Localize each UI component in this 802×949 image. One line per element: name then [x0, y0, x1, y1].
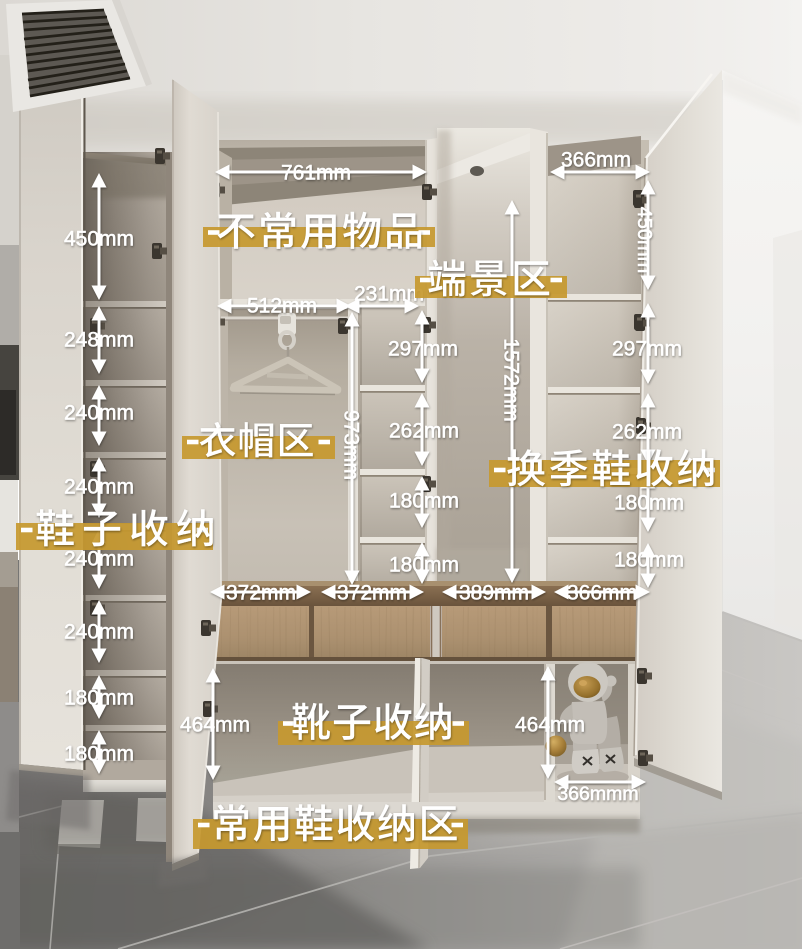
svg-text:240mm: 240mm: [64, 620, 134, 643]
svg-text:372mm: 372mm: [337, 581, 407, 604]
svg-text:366mmm: 366mmm: [557, 783, 638, 805]
svg-text:389mm: 389mm: [459, 581, 529, 604]
svg-text:262mm: 262mm: [612, 420, 682, 443]
svg-text:512mm: 512mm: [247, 294, 317, 317]
svg-text:1572mm: 1572mm: [499, 338, 523, 422]
svg-text:240mm: 240mm: [64, 547, 134, 570]
svg-text:464mm: 464mm: [180, 713, 250, 736]
svg-text:761mm: 761mm: [281, 161, 351, 184]
svg-text:240mm: 240mm: [64, 475, 134, 498]
svg-text:297mm: 297mm: [388, 337, 458, 360]
svg-text:366mm: 366mm: [567, 581, 637, 604]
svg-text:372mm: 372mm: [226, 581, 296, 604]
svg-text:231mm: 231mm: [354, 282, 424, 305]
svg-text:366mm: 366mm: [561, 148, 631, 171]
svg-text:180mm: 180mm: [389, 489, 459, 512]
svg-text:297mm: 297mm: [612, 337, 682, 360]
svg-text:450mm: 450mm: [633, 207, 655, 274]
svg-text:240mm: 240mm: [64, 401, 134, 424]
svg-text:180mm: 180mm: [614, 548, 684, 571]
svg-text:180mm: 180mm: [614, 491, 684, 514]
svg-text:450mm: 450mm: [64, 227, 134, 250]
svg-text:180mm: 180mm: [389, 553, 459, 576]
svg-text:180mm: 180mm: [64, 742, 134, 765]
svg-text:973mm: 973mm: [340, 410, 363, 480]
svg-text:262mm: 262mm: [389, 419, 459, 442]
svg-text:464mm: 464mm: [515, 713, 585, 736]
svg-text:180mm: 180mm: [64, 686, 134, 709]
svg-text:248mm: 248mm: [64, 328, 134, 351]
